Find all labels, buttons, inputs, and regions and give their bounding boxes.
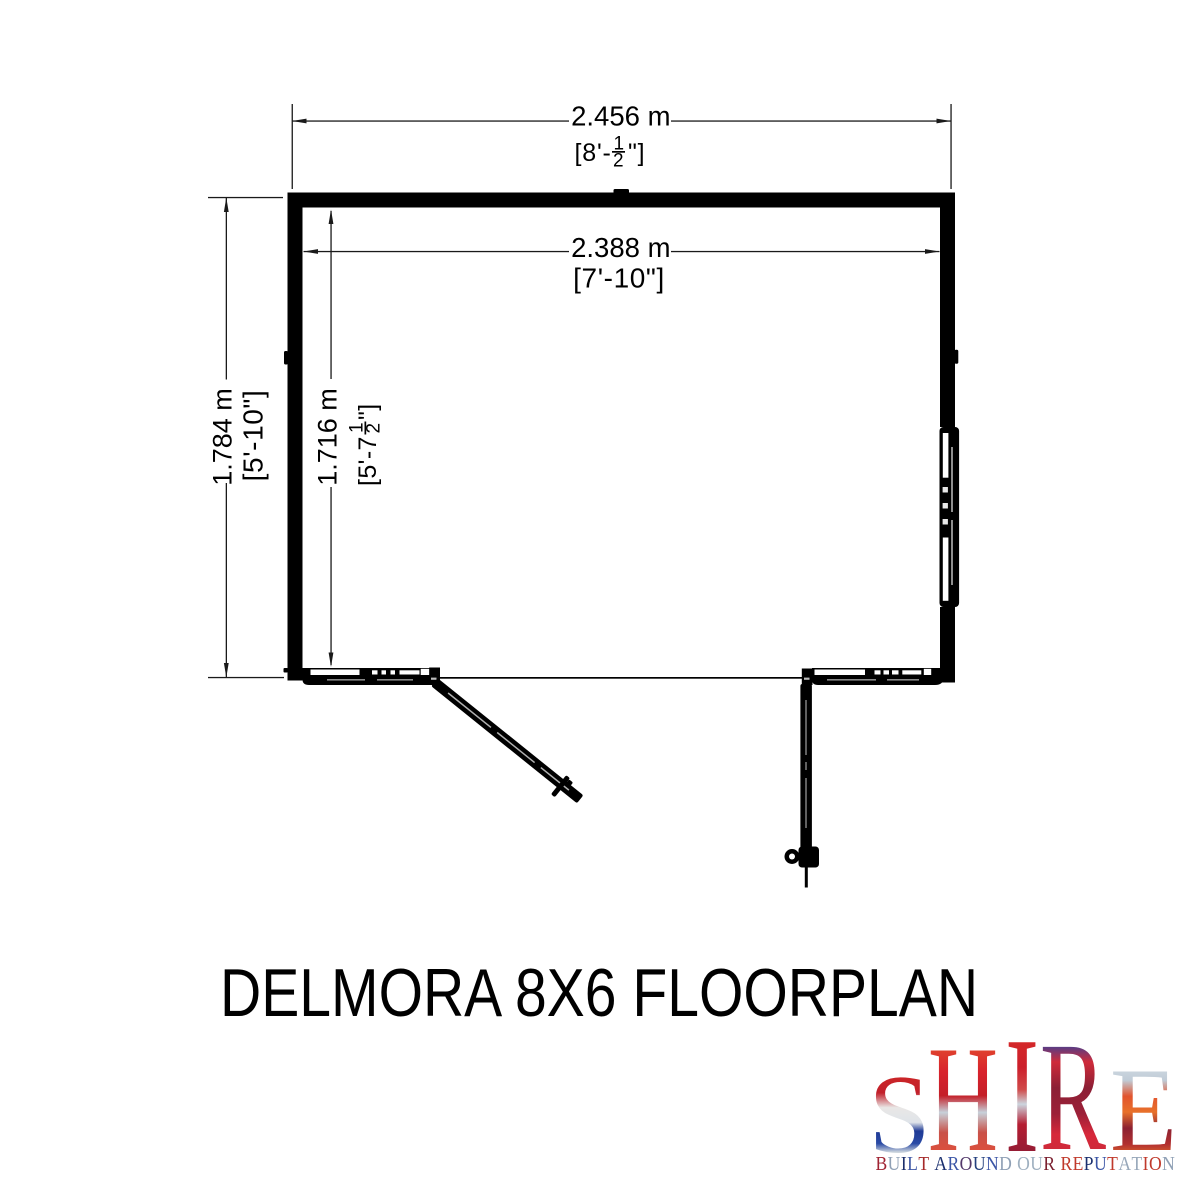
svg-text:[5'-10"]: [5'-10"]: [238, 390, 269, 482]
svg-text:"]: "]: [628, 139, 645, 167]
svg-text:[8'-: [8'-: [575, 139, 612, 167]
svg-text:[5'-7: [5'-7: [354, 436, 382, 486]
svg-text:1.784 m: 1.784 m: [208, 388, 238, 486]
svg-text:1.716 m: 1.716 m: [313, 388, 343, 486]
svg-text:2.456 m: 2.456 m: [571, 101, 670, 132]
svg-text:[7'-10"]: [7'-10"]: [573, 263, 665, 294]
svg-text:DELMORA 8X6 FLOORPLAN: DELMORA 8X6 FLOORPLAN: [220, 956, 978, 1032]
svg-text:2.388 m: 2.388 m: [571, 232, 670, 263]
svg-text:2: 2: [613, 151, 624, 172]
svg-text:2: 2: [363, 423, 384, 434]
svg-text:BUILT AROUND OUR REPUTATION: BUILT AROUND OUR REPUTATION: [876, 1153, 1176, 1175]
svg-text:"]: "]: [354, 403, 382, 420]
